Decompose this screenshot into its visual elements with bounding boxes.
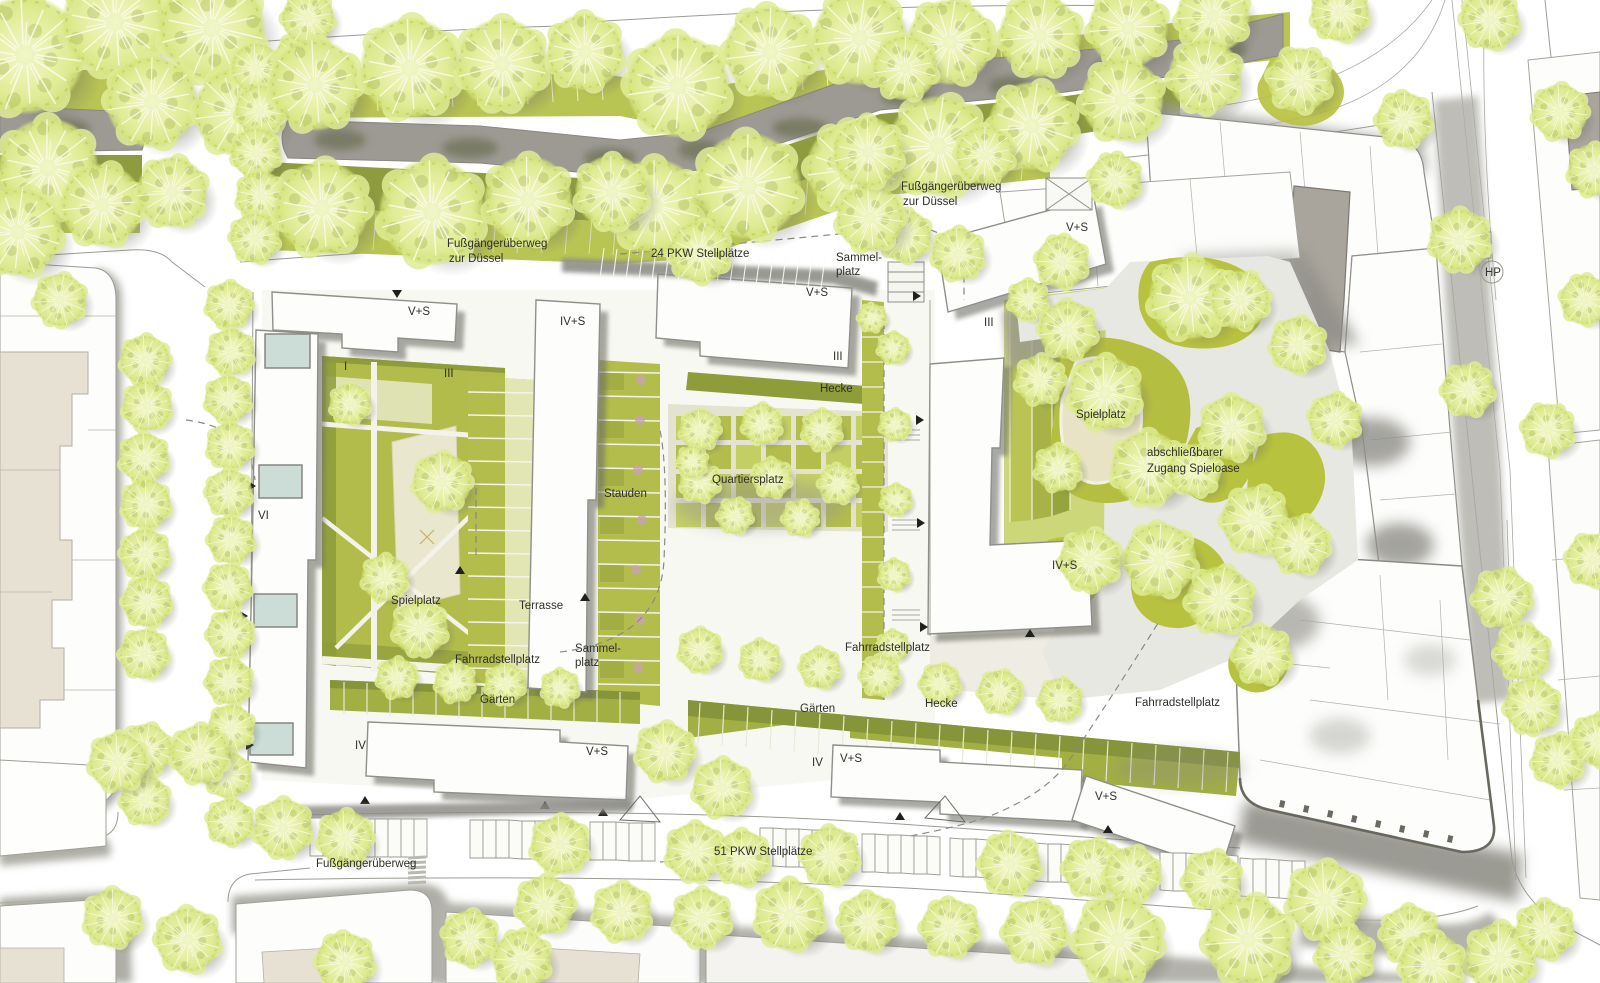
svg-text:III: III: [984, 317, 994, 329]
svg-text:Fahrradstellplatz: Fahrradstellplatz: [455, 654, 540, 666]
svg-text:V+S: V+S: [1095, 791, 1117, 803]
svg-text:Fußgängerüberweg: Fußgängerüberweg: [316, 858, 416, 870]
svg-text:Terrasse: Terrasse: [519, 600, 563, 612]
svg-text:V+S: V+S: [806, 287, 828, 299]
svg-text:24 PKW Stellplätze: 24 PKW Stellplätze: [651, 248, 749, 260]
svg-text:Spielplatz: Spielplatz: [391, 595, 441, 607]
svg-text:VI: VI: [258, 510, 269, 522]
svg-text:Fahrradstellplatz: Fahrradstellplatz: [845, 642, 930, 654]
svg-text:Sammel-: Sammel-: [575, 643, 621, 655]
svg-text:Gärten: Gärten: [480, 694, 515, 706]
svg-text:III: III: [833, 351, 843, 363]
svg-text:Spielplatz: Spielplatz: [1076, 409, 1126, 421]
svg-text:V+S: V+S: [408, 306, 430, 318]
svg-text:51 PKW Stellplätze: 51 PKW Stellplätze: [714, 846, 812, 858]
svg-text:zur Düssel: zur Düssel: [449, 253, 503, 265]
svg-text:Fahrradstellplatz: Fahrradstellplatz: [1135, 697, 1220, 709]
svg-text:Quartiersplatz: Quartiersplatz: [712, 474, 784, 486]
svg-text:Stauden: Stauden: [604, 488, 647, 500]
svg-text:V+S: V+S: [840, 753, 862, 765]
svg-text:Sammel-: Sammel-: [836, 252, 882, 264]
svg-text:IV+S: IV+S: [560, 316, 586, 328]
svg-text:platz: platz: [836, 266, 861, 278]
svg-text:IV: IV: [355, 740, 366, 752]
svg-text:III: III: [444, 368, 454, 380]
svg-text:Fußgängerüberweg: Fußgängerüberweg: [447, 238, 547, 250]
svg-text:Fußgängerüberweg: Fußgängerüberweg: [901, 181, 1001, 193]
svg-text:platz: platz: [575, 657, 600, 669]
svg-text:V+S: V+S: [586, 746, 608, 758]
svg-text:I: I: [344, 361, 347, 373]
svg-text:zur Düssel: zur Düssel: [903, 196, 957, 208]
svg-text:IV: IV: [812, 757, 823, 769]
svg-text:Zugang Spieloase: Zugang Spieloase: [1147, 463, 1240, 475]
svg-text:Hecke: Hecke: [925, 698, 958, 710]
svg-text:Hecke: Hecke: [820, 383, 853, 395]
svg-text:IV+S: IV+S: [1052, 560, 1078, 572]
svg-text:abschließbarer: abschließbarer: [1147, 447, 1223, 459]
svg-text:V+S: V+S: [1066, 222, 1088, 234]
svg-text:Gärten: Gärten: [800, 703, 835, 715]
